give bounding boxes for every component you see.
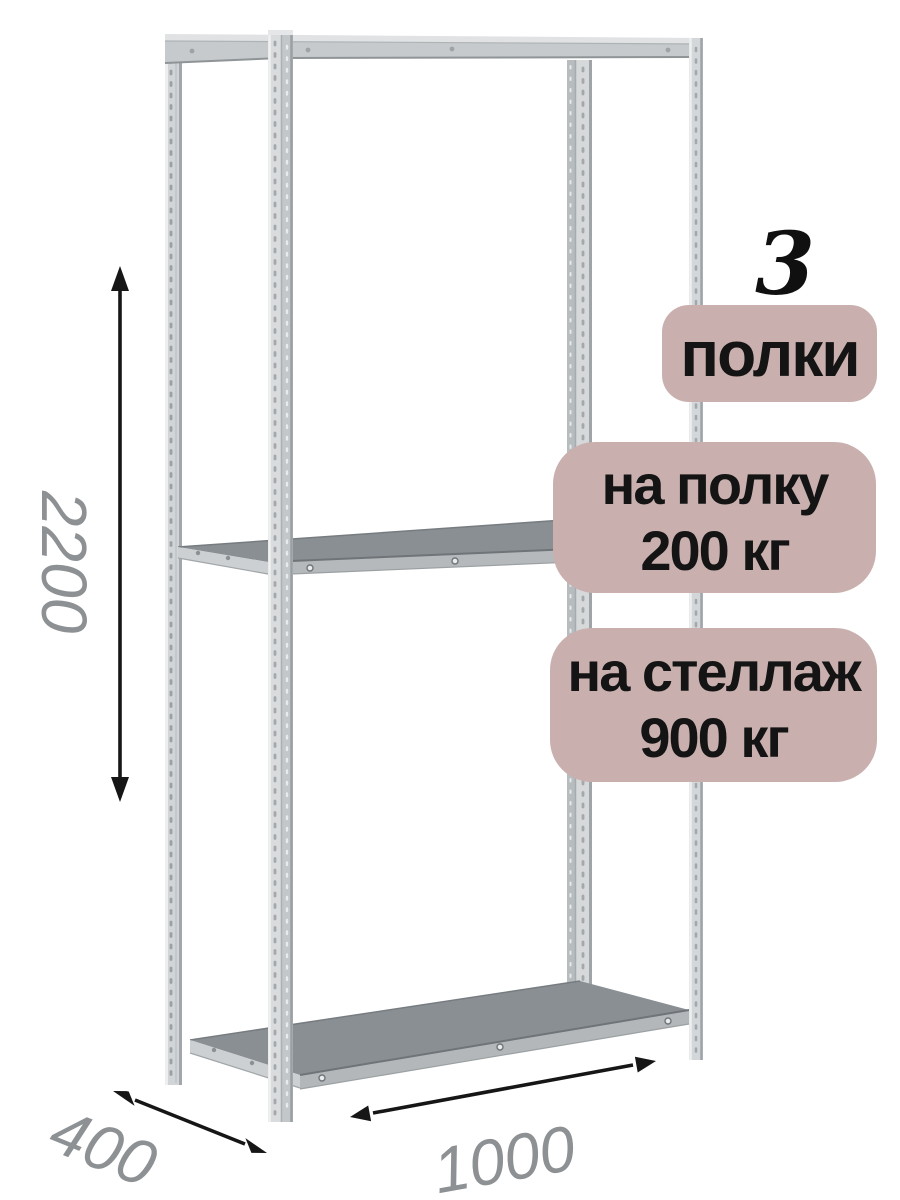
per-shelf-load-badge: на полку 200 кг: [553, 442, 876, 593]
rack-shelf-top: [165, 34, 703, 63]
height-dimension-arrow: [111, 266, 129, 802]
rack-post-back-left: [165, 38, 182, 1085]
shelf-count-label: полки: [680, 317, 858, 391]
rack-shelf-bottom: [190, 981, 689, 1089]
depth-dimension-label: 400: [40, 1094, 166, 1200]
shelf-count-number: 3: [718, 218, 852, 310]
per-shelf-load-line2: 200 кг: [640, 518, 788, 584]
per-shelf-load-line1: на полку: [602, 452, 828, 518]
shelf-count-badge: полки: [662, 305, 877, 402]
per-rack-load-badge: на стеллаж 900 кг: [550, 628, 877, 782]
product-image: 2200 400 1000 3 полки на полку 200 кг на…: [0, 0, 900, 1200]
per-rack-load-line2: 900 кг: [639, 705, 787, 771]
rack-illustration: 2200 400 1000: [0, 0, 900, 1200]
width-dimension-label: 1000: [428, 1111, 581, 1200]
rack-post-front-left: [268, 30, 293, 1122]
per-rack-load-line1: на стеллаж: [567, 639, 859, 705]
height-dimension-label: 2200: [28, 490, 100, 634]
